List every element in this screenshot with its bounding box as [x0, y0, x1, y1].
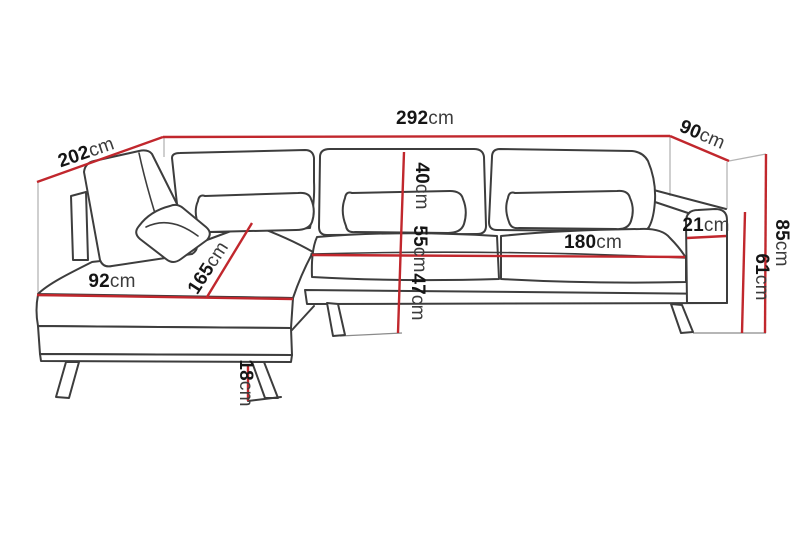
backrest-frame-post: [71, 192, 88, 260]
guide-depth-to-height: [729, 154, 766, 161]
sofa-dimension-diagram: 292cm 202cm 90cm 85cm 61cm 21cm 180cm 40…: [0, 0, 800, 533]
label-seat-height: 47cm: [407, 273, 428, 320]
sofa-leg-right: [671, 304, 693, 333]
label-total-height: 85cm: [771, 219, 792, 266]
chaise-to-rail-edge: [292, 306, 314, 330]
lumbar-pillow-chaise: [196, 193, 314, 232]
armrest-top-outer-edge: [646, 188, 726, 209]
lumbar-pillow-middle: [343, 191, 466, 233]
chaise-front-face: [37, 295, 294, 328]
label-armrest-top: 21cm: [682, 215, 729, 236]
dimension-line-total-height: [765, 154, 766, 333]
label-armrest-height: 61cm: [751, 253, 772, 300]
label-back-seat-height: 55cm: [409, 225, 430, 272]
label-chaise-front: 92cm: [88, 271, 135, 292]
label-right-depth: 90cm: [676, 116, 728, 154]
sofa-leg-middle: [327, 303, 345, 336]
label-leg-height: 18cm: [235, 359, 256, 406]
chaise-leg-left: [56, 362, 79, 398]
label-seat-width: 180cm: [564, 232, 622, 253]
label-backrest-height: 40cm: [411, 162, 432, 209]
sofa-illustration: [37, 149, 728, 401]
guide-floor-middle: [340, 333, 402, 336]
dimension-line-total-width: [163, 136, 670, 137]
chaise-base-band: [38, 326, 292, 355]
dimension-line-armrest-height: [742, 212, 745, 333]
diagram-canvas: 292cm 202cm 90cm 85cm 61cm 21cm 180cm 40…: [0, 0, 800, 533]
label-total-width: 292cm: [396, 108, 454, 129]
sofa-base-rail: [305, 290, 727, 304]
lumbar-pillow-right: [506, 191, 633, 229]
